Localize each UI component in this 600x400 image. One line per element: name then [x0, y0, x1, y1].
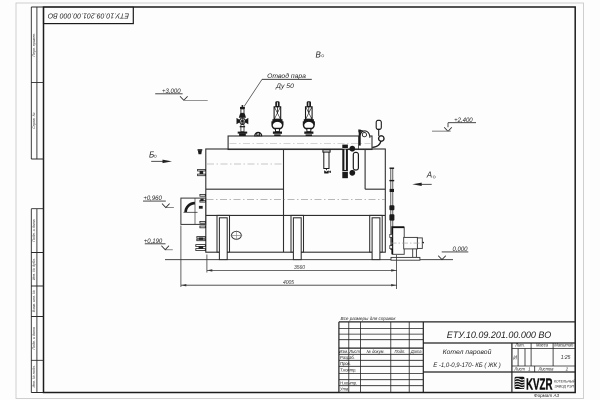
svg-text:kvzr.ru: kvzr.ru: [386, 20, 414, 41]
svg-text:Инв. № подл.: Инв. № подл.: [32, 365, 36, 387]
svg-text:Б: Б: [149, 150, 154, 159]
svg-text:+0,190: +0,190: [144, 239, 163, 245]
svg-text:Разраб.: Разраб.: [340, 355, 355, 360]
svg-text:1:25: 1:25: [561, 355, 571, 361]
svg-text:kvzr.ru: kvzr.ru: [56, 164, 84, 185]
svg-text:KVZR: KVZR: [526, 376, 553, 393]
svg-text:kvzr.ru: kvzr.ru: [166, 236, 194, 257]
svg-text:Изм.: Изм.: [339, 349, 348, 354]
svg-text:Масштаб: Масштаб: [554, 343, 574, 348]
svg-text:Дата: Дата: [410, 349, 423, 354]
svg-text:Масса: Масса: [536, 343, 549, 348]
svg-text:Ду 50: Ду 50: [275, 83, 294, 90]
svg-text:1: 1: [528, 367, 530, 372]
svg-text:Инв. № дубл.: Инв. № дубл.: [32, 258, 36, 280]
svg-text:kvzr.ru: kvzr.ru: [386, 92, 414, 113]
svg-text:kvzr.ru: kvzr.ru: [166, 20, 194, 41]
svg-text:Формат А3: Формат А3: [534, 393, 560, 398]
svg-text:kvzr.ru: kvzr.ru: [276, 308, 304, 329]
svg-text:kvzr.ru: kvzr.ru: [56, 236, 84, 257]
svg-text:Пров.: Пров.: [340, 361, 351, 366]
svg-text:Все размеры для справок: Все размеры для справок: [341, 316, 397, 321]
svg-text:Лист: Лист: [513, 367, 525, 372]
svg-text:kvzr.ru: kvzr.ru: [56, 92, 84, 113]
svg-text:Перв. примен.: Перв. примен.: [32, 33, 36, 57]
svg-text:kvzr.ru: kvzr.ru: [496, 164, 524, 185]
svg-text:2: 2: [565, 367, 569, 372]
svg-text:kvzr.ru: kvzr.ru: [166, 164, 194, 185]
svg-text:Т.контр.: Т.контр.: [340, 367, 357, 372]
svg-text:+3,000: +3,000: [162, 89, 181, 95]
svg-text:Лист: Лист: [348, 349, 360, 354]
svg-text:+2,400: +2,400: [454, 118, 473, 124]
svg-text:kvzr.ru: kvzr.ru: [276, 20, 304, 41]
svg-text:Е -1,0-0,9-170- КБ ( ЖК ): Е -1,0-0,9-170- КБ ( ЖК ): [433, 363, 501, 369]
svg-text:kvzr.ru: kvzr.ru: [166, 92, 194, 113]
svg-text:kvzr.ru: kvzr.ru: [496, 308, 524, 329]
svg-text:kvzr.ru: kvzr.ru: [496, 92, 524, 113]
svg-text:Подп.: Подп.: [395, 349, 406, 354]
svg-text:kvzr.ru: kvzr.ru: [166, 308, 194, 329]
svg-text:№ докум.: № докум.: [367, 349, 385, 354]
svg-text:ЗАВОД РЭП: ЗАВОД РЭП: [555, 384, 575, 388]
svg-text:А: А: [426, 171, 432, 180]
svg-text:+0,960: +0,960: [143, 196, 162, 202]
svg-text:Взам. инв. №: Взам. инв. №: [32, 290, 36, 312]
svg-text:Котел паровой: Котел паровой: [443, 348, 492, 356]
svg-text:И: И: [513, 356, 517, 362]
svg-text:kvzr.ru: kvzr.ru: [56, 308, 84, 329]
svg-text:kvzr.ru: kvzr.ru: [496, 20, 524, 41]
svg-text:ЕТУ.10.09.201.00.000 ВО: ЕТУ.10.09.201.00.000 ВО: [47, 11, 129, 18]
svg-text:В: В: [316, 50, 322, 59]
svg-text:Утв.: Утв.: [340, 387, 349, 392]
svg-text:Подп. и дата: Подп. и дата: [32, 327, 36, 350]
svg-text:Н.контр.: Н.контр.: [340, 381, 357, 386]
svg-text:ЕТУ.10.09.201.00.000 ВО: ЕТУ.10.09.201.00.000 ВО: [447, 330, 551, 340]
svg-text:4005: 4005: [283, 280, 294, 286]
svg-text:Листов: Листов: [537, 367, 554, 372]
svg-text:Подп. и дата: Подп. и дата: [32, 219, 36, 242]
svg-text:kvzr.ru: kvzr.ru: [496, 236, 524, 257]
svg-text:kvzr.ru: kvzr.ru: [276, 164, 304, 185]
svg-text:КОТЕЛЬНЫЙ: КОТЕЛЬНЫЙ: [554, 379, 576, 383]
svg-text:0,000: 0,000: [452, 247, 468, 253]
svg-text:3560: 3560: [294, 265, 305, 271]
svg-text:Справ. №: Справ. №: [32, 112, 36, 128]
svg-text:Лит.: Лит.: [514, 343, 525, 348]
